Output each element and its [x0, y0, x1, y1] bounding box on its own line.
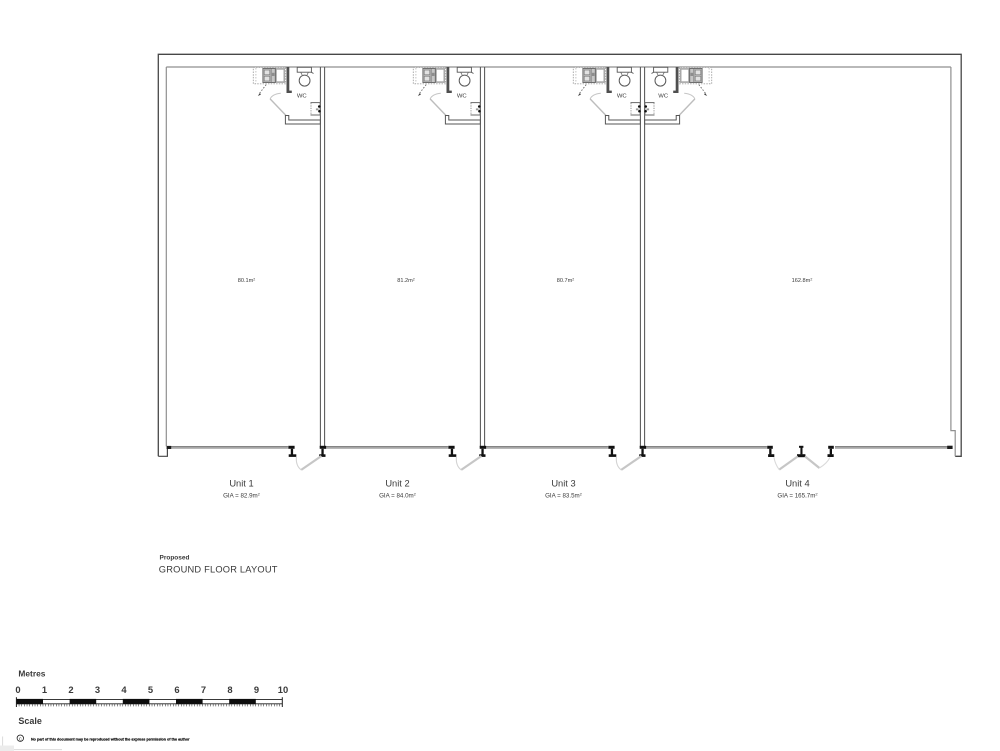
svg-text:10: 10 [278, 684, 288, 695]
svg-text:WC: WC [457, 94, 468, 100]
svg-text:Unit 4: Unit 4 [785, 479, 809, 489]
svg-text:No part of this document may b: No part of this document may be reproduc… [31, 737, 190, 741]
svg-text:3: 3 [95, 684, 100, 695]
svg-text:WC: WC [297, 94, 308, 100]
svg-text:GROUND FLOOR LAYOUT: GROUND FLOOR LAYOUT [159, 565, 278, 575]
svg-text:80.7m2: 80.7m2 [557, 277, 575, 284]
svg-text:8: 8 [227, 684, 232, 695]
svg-text:Scale: Scale [18, 716, 42, 726]
svg-text:c: c [19, 736, 22, 742]
svg-text:6: 6 [174, 684, 179, 695]
svg-text:9: 9 [254, 684, 259, 695]
svg-text:4: 4 [121, 684, 127, 695]
svg-text:0: 0 [15, 684, 20, 695]
svg-text:2: 2 [68, 684, 73, 695]
svg-text:GIA = 84.0m2: GIA = 84.0m2 [379, 492, 417, 500]
svg-text:Metres: Metres [18, 669, 45, 679]
svg-text:Unit 1: Unit 1 [229, 479, 253, 489]
svg-text:5: 5 [148, 684, 153, 695]
svg-text:162.8m2: 162.8m2 [792, 277, 813, 284]
svg-text:GIA = 83.5m2: GIA = 83.5m2 [545, 492, 583, 500]
svg-text:Unit 3: Unit 3 [551, 479, 575, 489]
svg-text:Unit 2: Unit 2 [385, 479, 409, 489]
svg-text:7: 7 [201, 684, 206, 695]
svg-text:GIA = 82.9m2: GIA = 82.9m2 [223, 492, 261, 500]
svg-text:80.1m2: 80.1m2 [238, 277, 256, 284]
svg-text:WC: WC [617, 94, 628, 100]
svg-text:81.2m2: 81.2m2 [397, 277, 415, 284]
svg-text:WC: WC [658, 94, 669, 100]
svg-text:Proposed: Proposed [160, 555, 190, 562]
svg-text:1: 1 [42, 684, 47, 695]
svg-text:GIA = 165.7m2: GIA = 165.7m2 [777, 492, 818, 500]
